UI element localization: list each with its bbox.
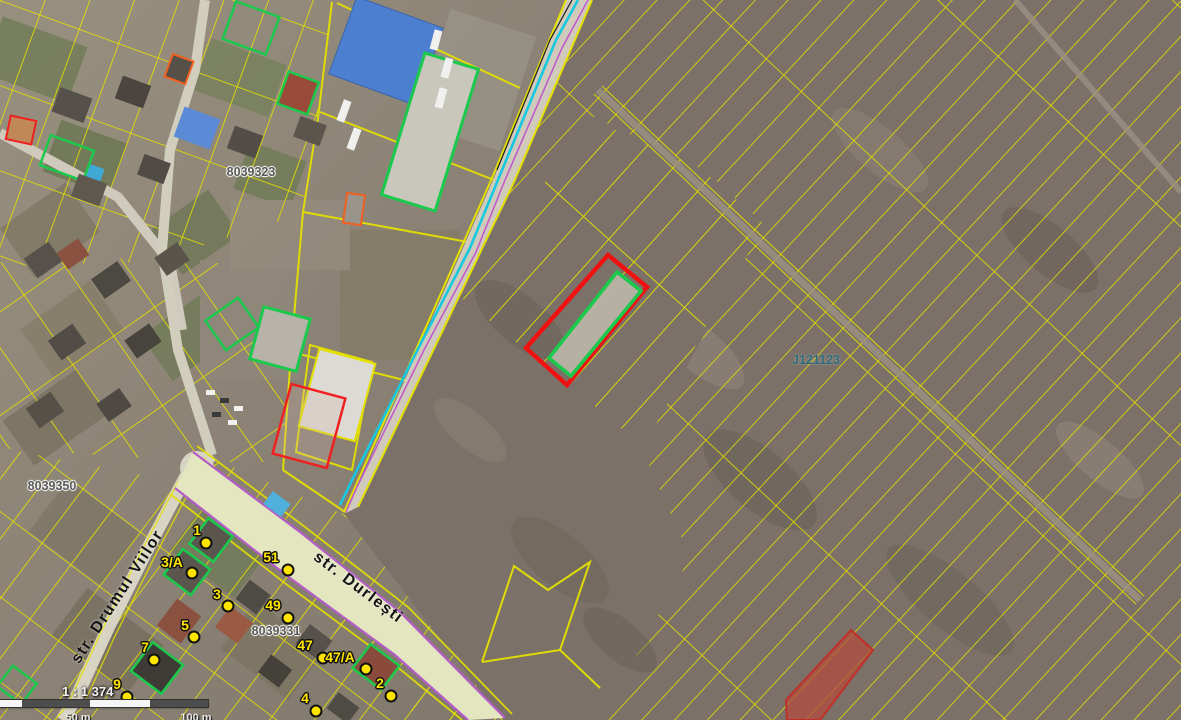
scale-bar — [0, 700, 208, 707]
scale-tick-label: 50 m — [65, 712, 90, 720]
scale-indicator: 1 : 1 374 50 m100 m — [0, 684, 230, 720]
scale-ratio-text: 1 : 1 374 — [62, 684, 113, 699]
map-drawing — [0, 0, 1181, 720]
map-canvas[interactable]: str. Drumul Viilorstr. Durlești803932380… — [0, 0, 1181, 720]
scale-tick-label: 100 m — [180, 712, 211, 720]
